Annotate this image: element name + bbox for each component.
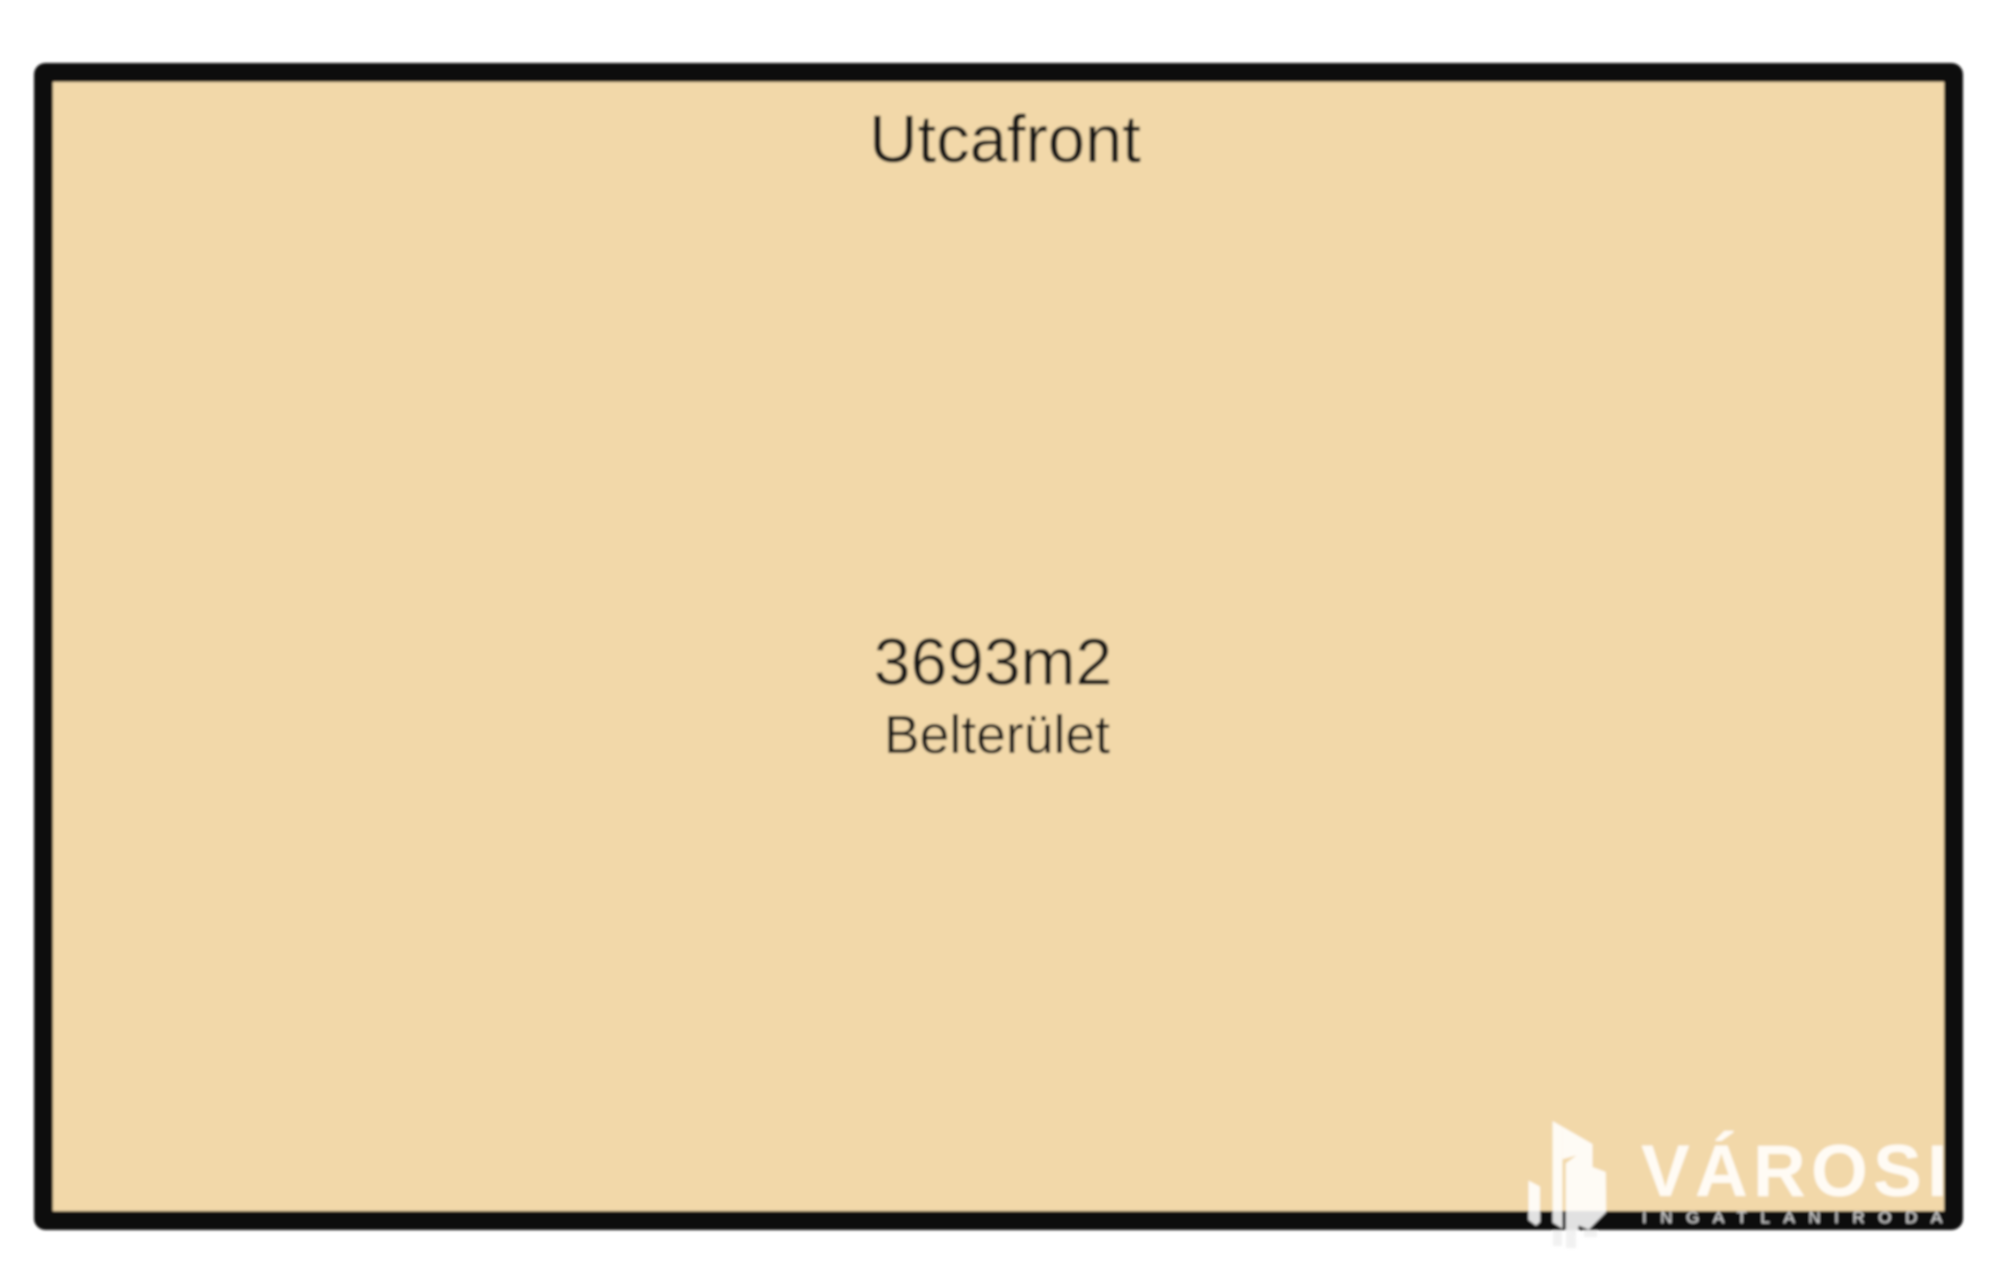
svg-text:VÁROSI: VÁROSI <box>1641 1131 1953 1212</box>
svg-text:3693m2: 3693m2 <box>874 625 1113 699</box>
svg-text:Utcafront: Utcafront <box>869 102 1141 177</box>
svg-text:Belterület: Belterület <box>884 706 1110 765</box>
svg-text:INGATLANIRODA: INGATLANIRODA <box>1642 1208 1956 1227</box>
